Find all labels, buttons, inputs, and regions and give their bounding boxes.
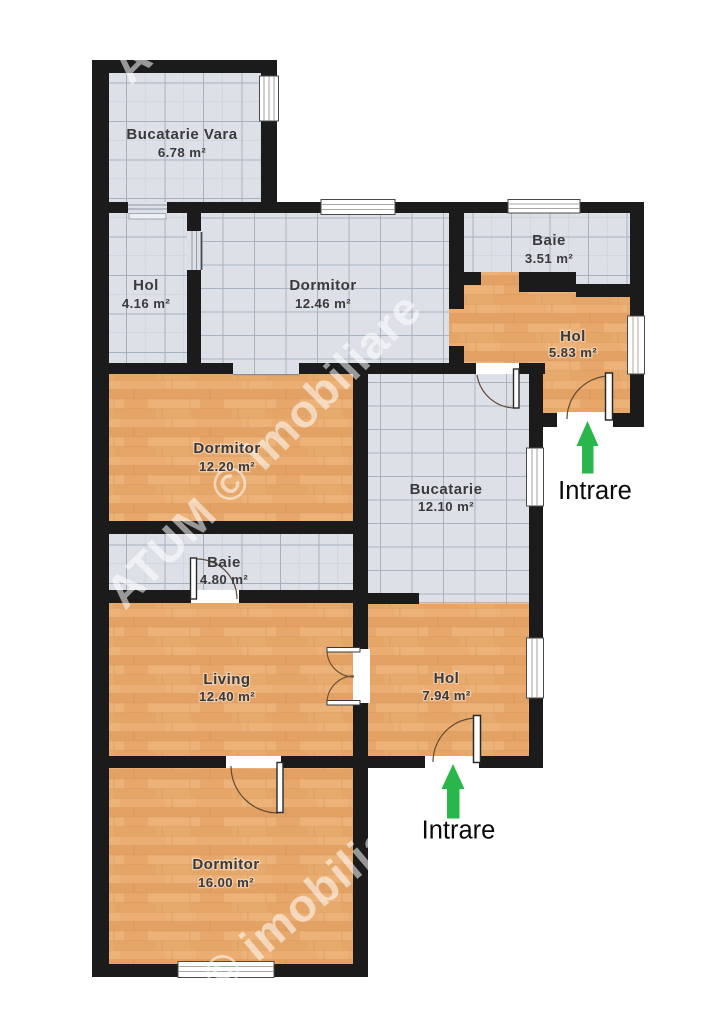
svg-text:Dormitor: Dormitor [289, 277, 356, 294]
svg-text:6.78 m²: 6.78 m² [158, 145, 206, 160]
svg-text:Intrare: Intrare [422, 817, 496, 845]
svg-text:12.10 m²: 12.10 m² [418, 499, 474, 514]
svg-text:5.83 m²: 5.83 m² [549, 345, 597, 360]
svg-text:Dormitor: Dormitor [192, 856, 259, 873]
svg-text:Dormitor: Dormitor [193, 440, 260, 457]
svg-text:4.16 m²: 4.16 m² [122, 296, 170, 311]
svg-text:Hol: Hol [560, 328, 586, 345]
svg-text:Hol: Hol [133, 277, 159, 294]
svg-text:Intrare: Intrare [558, 477, 632, 505]
svg-text:12.20 m²: 12.20 m² [199, 459, 255, 474]
svg-text:Bucatarie: Bucatarie [410, 481, 483, 498]
svg-text:7.94 m²: 7.94 m² [422, 688, 470, 703]
svg-text:16.00 m²: 16.00 m² [198, 875, 254, 890]
svg-text:12.46 m²: 12.46 m² [295, 296, 351, 311]
svg-text:Bucatarie Vara: Bucatarie Vara [126, 126, 237, 143]
svg-text:4.80 m²: 4.80 m² [200, 572, 248, 587]
svg-text:Living: Living [203, 671, 250, 688]
svg-text:Hol: Hol [434, 670, 460, 687]
svg-text:Baie: Baie [207, 554, 241, 571]
svg-text:12.40 m²: 12.40 m² [199, 689, 255, 704]
svg-text:Baie: Baie [532, 232, 566, 249]
svg-text:3.51 m²: 3.51 m² [525, 251, 573, 266]
